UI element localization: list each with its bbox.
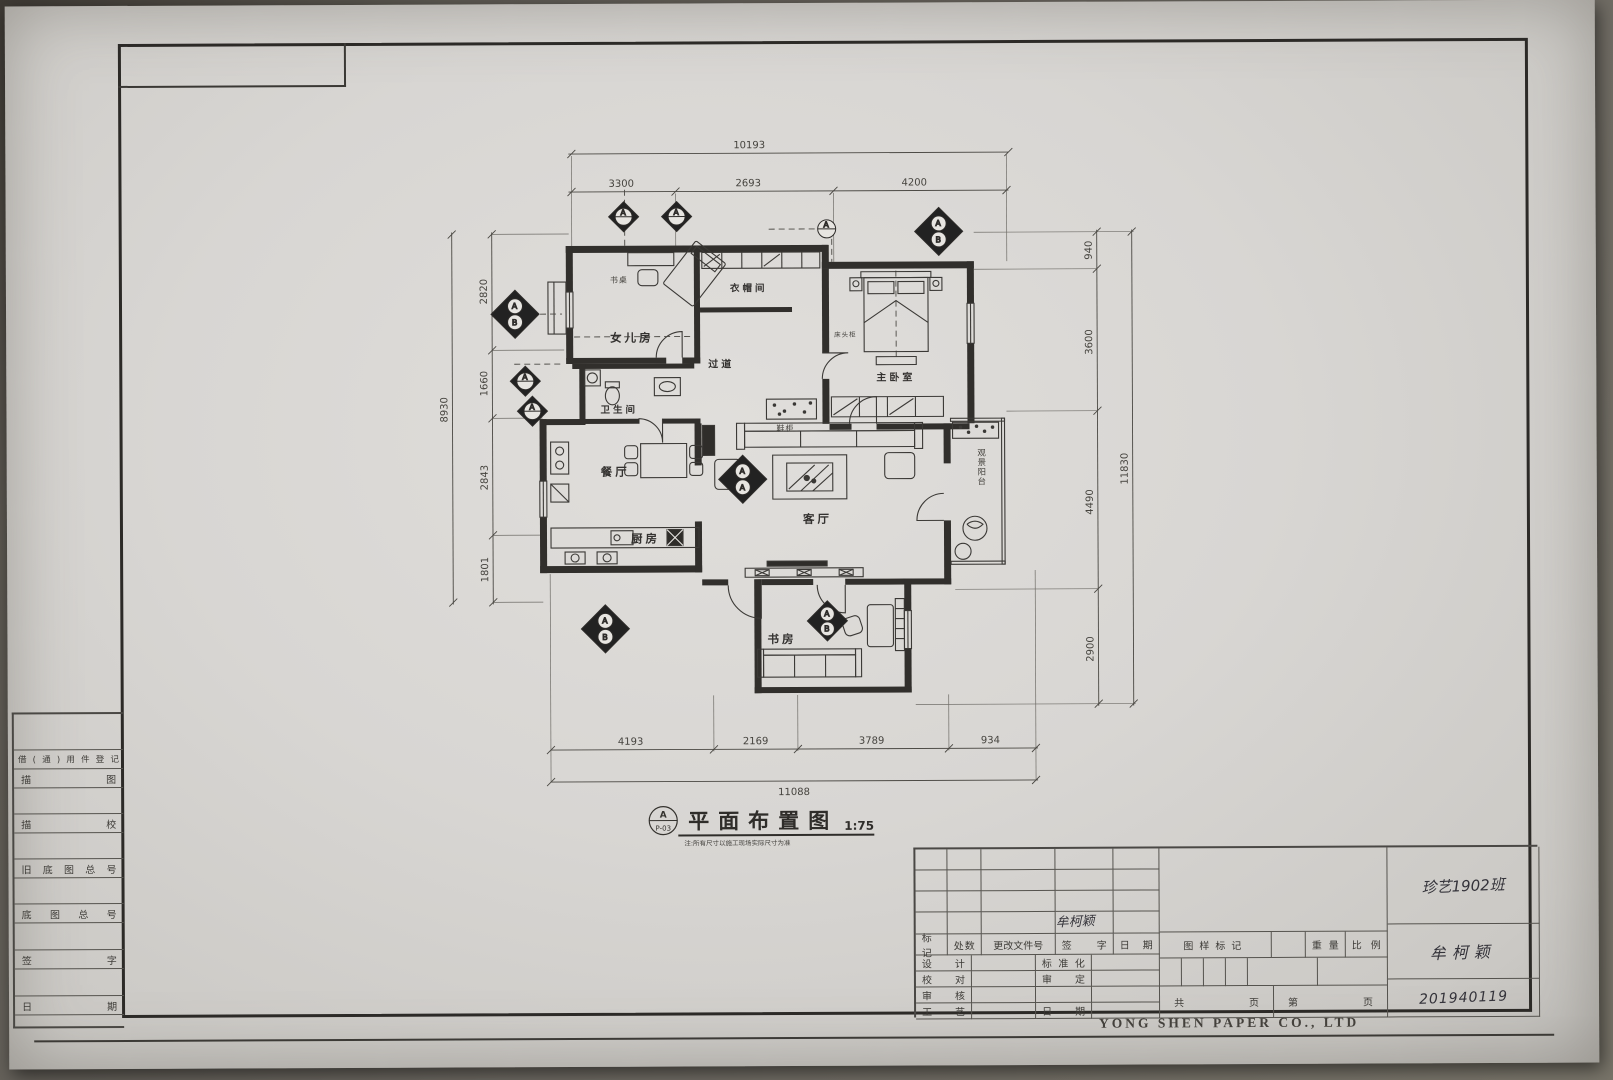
tb-cell xyxy=(1092,986,1160,1002)
room-label-bedside: 床头柜 xyxy=(834,330,857,339)
drawing-scale: 1:75 xyxy=(844,819,874,833)
drawing-title: 平面布置图 xyxy=(688,809,838,834)
marker-letter: B xyxy=(935,235,942,244)
register-label: 借(通)用件登记 xyxy=(14,753,123,765)
register-row: 描校 xyxy=(14,814,123,833)
tb-name-cell: 牟柯颖 xyxy=(1388,924,1540,980)
paper-sheet: 借(通)用件登记 描图 描校 旧底图总号 底图总号 签字 日期 xyxy=(5,0,1600,1069)
dim-left-seg: 1660 xyxy=(479,371,490,397)
tb-pages-label: 页 xyxy=(1249,994,1259,1009)
dim-left-seg: 2843 xyxy=(480,465,491,491)
register-row: 描图 xyxy=(14,769,123,788)
dim-left-seg: 1801 xyxy=(480,557,491,583)
tb-cell xyxy=(1113,869,1159,890)
room-label-bath: 卫生间 xyxy=(600,404,638,416)
room-label-corridor: 过道 xyxy=(708,357,734,370)
tb-weight-label: 重量 xyxy=(1306,937,1345,952)
tb-role-proofread: 校对 xyxy=(916,971,971,986)
tb-pages-label: 共 xyxy=(1174,994,1184,1009)
marker-letter: A xyxy=(673,208,680,217)
paper-company-watermark: YONG SHEN PAPER CO., LTD xyxy=(1039,1014,1419,1032)
tb-cell xyxy=(1248,958,1318,986)
tb-pages-total: 共页 xyxy=(1160,986,1274,1018)
tb-cell xyxy=(915,870,947,891)
tb-cell xyxy=(1055,849,1113,870)
dim-bottom-seg: 3789 xyxy=(859,736,885,747)
dim-bottom-seg: 4193 xyxy=(618,737,644,748)
marker-letter: A xyxy=(824,609,831,618)
tb-cell xyxy=(981,870,1055,891)
marker-letter: B xyxy=(512,318,519,327)
tb-role-review: 审核 xyxy=(916,987,971,1002)
tb-cell xyxy=(1113,848,1159,869)
tb-cell-drawing-name xyxy=(1159,847,1387,932)
room-label-cloak: 衣帽间 xyxy=(730,282,768,294)
balcony-walls xyxy=(950,418,1005,564)
register-row-empty xyxy=(14,714,123,750)
register-row-empty xyxy=(14,878,123,904)
dim-right-seg: 2900 xyxy=(1085,636,1096,662)
furniture xyxy=(550,239,1000,678)
register-row: 日期 xyxy=(15,996,124,1015)
tb-cell xyxy=(915,849,947,870)
register-label: 底图总号 xyxy=(15,905,124,920)
register-row: 底图总号 xyxy=(15,904,124,923)
register-row-empty xyxy=(15,1015,124,1026)
dim-top-seg: 2693 xyxy=(735,178,761,189)
tb-cell xyxy=(972,987,1036,1003)
tb-pages-label: 页 xyxy=(1363,994,1373,1009)
register-strip: 借(通)用件登记 描图 描校 旧底图总号 底图总号 签字 日期 xyxy=(12,712,124,1028)
drawing-title-group: A P-03 平面布置图 1:75 注:所有尺寸以施工现场实际尺寸为准 xyxy=(649,806,874,848)
room-label-living: 客厅 xyxy=(802,512,832,526)
tb-cell xyxy=(1056,891,1114,912)
room-label-kitchen: 厨房 xyxy=(631,532,660,546)
register-label: 签字 xyxy=(15,951,124,966)
dim-bottom-total: 11088 xyxy=(778,787,810,798)
register-label: 描图 xyxy=(14,770,123,785)
room-label-master: 主卧室 xyxy=(876,371,915,384)
room-label-balcony: 观景阳台 xyxy=(976,448,986,486)
tb-drawing-mark-label: 图样标记 xyxy=(1183,937,1247,952)
tb-role-standardization: 标准化 xyxy=(1036,955,1091,970)
register-row-empty xyxy=(15,923,124,950)
room-label-daughter: 女儿房 xyxy=(610,331,654,345)
tb-header-label: 处数 xyxy=(948,937,981,952)
marker-letter: B xyxy=(602,633,609,642)
marker-letter: A xyxy=(823,220,830,229)
register-row-empty xyxy=(14,833,123,859)
tb-cell xyxy=(947,849,981,870)
tb-page-number: 第页 xyxy=(1274,985,1388,1017)
dim-right-seg: 3600 xyxy=(1084,329,1095,355)
title-marker-letter: A xyxy=(660,811,667,821)
marker-letter: A xyxy=(620,208,627,217)
marker-letter: B xyxy=(824,624,831,633)
tb-cell xyxy=(1160,958,1182,986)
marker-letter: A xyxy=(512,302,519,311)
frame-corner-notch xyxy=(118,43,346,88)
dim-top-seg: 3300 xyxy=(608,179,634,190)
name-handwritten: 牟柯颖 xyxy=(1430,938,1497,964)
room-label-dining: 餐厅 xyxy=(600,465,630,479)
dim-right-seg: 940 xyxy=(1084,241,1095,260)
tb-header-label: 签字 xyxy=(1056,936,1113,951)
dim-left-seg: 2820 xyxy=(479,279,490,305)
class-handwritten: 珍艺1902班 xyxy=(1421,873,1505,897)
register-row: 借(通)用件登记 xyxy=(14,750,123,769)
student-id-handwritten: 201940119 xyxy=(1419,988,1509,1007)
tb-cell xyxy=(1272,932,1306,958)
tb-cell xyxy=(948,891,982,912)
tb-cell xyxy=(1182,958,1204,986)
tb-role-approve: 审定 xyxy=(1036,971,1091,986)
tb-cell xyxy=(1226,958,1248,986)
tb-cell xyxy=(972,1003,1036,1019)
dim-bottom-seg: 934 xyxy=(981,735,1000,746)
room-label-shoe: 鞋柜 xyxy=(777,423,795,433)
register-label: 旧底图总号 xyxy=(14,860,123,875)
register-row-empty xyxy=(15,969,124,996)
tb-cell xyxy=(1092,970,1160,986)
dim-top-total: 10193 xyxy=(733,140,765,151)
dim-right-seg: 4490 xyxy=(1085,489,1096,515)
room-label-study: 书房 xyxy=(767,632,796,646)
tb-cell xyxy=(1114,911,1160,933)
tb-class-cell: 珍艺1902班 xyxy=(1387,847,1539,925)
tb-cell xyxy=(947,870,981,891)
register-label: 描校 xyxy=(14,815,123,830)
floor-plan-svg: 10193 3300 2693 4200 8930 2820 1660 2843… xyxy=(413,129,1152,868)
tb-cell xyxy=(1092,954,1160,970)
marker-letter: A xyxy=(740,483,747,492)
tb-scale-label: 比例 xyxy=(1346,936,1387,951)
tb-cell xyxy=(1204,958,1226,986)
marker-letter: A xyxy=(739,467,746,476)
room-label-desk: 书桌 xyxy=(610,275,628,285)
dim-left-total: 8930 xyxy=(439,397,450,423)
register-row-empty xyxy=(14,788,123,814)
marker-letter: A xyxy=(522,373,529,382)
tb-pages-label: 第 xyxy=(1288,994,1298,1009)
floor-plan: 10193 3300 2693 4200 8930 2820 1660 2843… xyxy=(413,129,1152,868)
drawing-note: 注:所有尺寸以施工现场实际尺寸为准 xyxy=(684,838,791,847)
title-block: 牟柯颖 标记 处数 更改文件号 签字 日期 设计 标准化 校对 审定 审核 工艺… xyxy=(913,845,1538,1018)
dim-right-total: 11830 xyxy=(1120,453,1131,485)
dim-top-seg: 4200 xyxy=(901,177,927,188)
marker-letter: A xyxy=(935,219,942,228)
tb-cell xyxy=(948,912,982,934)
tb-cell xyxy=(982,891,1056,912)
tb-cell xyxy=(1055,870,1113,891)
tb-role-process: 工艺 xyxy=(916,1003,971,1018)
register-row: 签字 xyxy=(15,950,124,969)
tb-cell xyxy=(972,971,1036,987)
register-row: 旧底图总号 xyxy=(14,859,123,878)
tb-header-label: 日期 xyxy=(1114,936,1159,951)
tb-role-design: 设计 xyxy=(916,955,971,970)
tb-cell xyxy=(982,912,1056,934)
tb-cell xyxy=(1318,957,1388,985)
tb-cell xyxy=(916,891,948,912)
tb-cell xyxy=(972,955,1036,971)
tb-cell xyxy=(981,849,1055,870)
register-label: 日期 xyxy=(15,997,124,1012)
marker-letter: A xyxy=(602,616,609,625)
marker-letter: A xyxy=(529,403,536,412)
tb-id-cell: 201940119 xyxy=(1388,979,1540,1018)
dim-bottom-seg: 2169 xyxy=(743,736,769,747)
tb-cell xyxy=(1036,987,1092,1003)
title-marker-ref: P-03 xyxy=(656,825,672,833)
tb-cell xyxy=(1114,890,1160,911)
signature-handwritten: 牟柯颖 xyxy=(1055,910,1095,931)
paper-edge-line xyxy=(34,1034,1554,1043)
tb-header-label: 更改文件号 xyxy=(993,936,1043,951)
